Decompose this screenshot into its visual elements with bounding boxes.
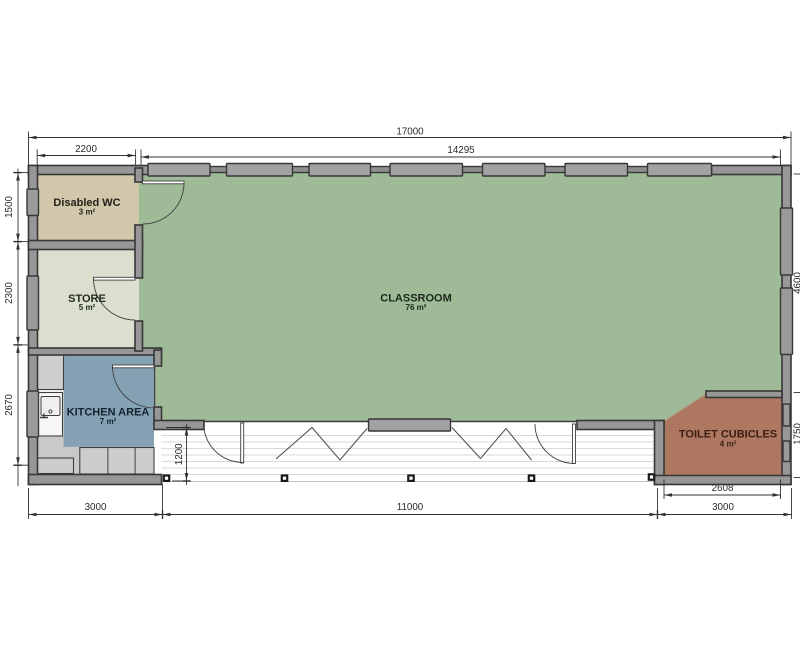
svg-text:2300: 2300	[4, 282, 15, 304]
svg-text:7 m²: 7 m²	[100, 417, 117, 426]
svg-text:2200: 2200	[75, 144, 97, 155]
svg-text:2608: 2608	[712, 483, 734, 494]
svg-text:14295: 14295	[447, 145, 475, 156]
svg-text:1200: 1200	[174, 443, 185, 465]
svg-text:2670: 2670	[4, 394, 15, 416]
svg-text:3000: 3000	[712, 502, 734, 513]
svg-text:5 m²: 5 m²	[79, 303, 96, 312]
svg-text:1750: 1750	[793, 423, 800, 445]
svg-text:4 m²: 4 m²	[720, 440, 737, 449]
svg-text:1500: 1500	[4, 196, 15, 218]
svg-text:76 m²: 76 m²	[406, 303, 427, 312]
svg-text:17000: 17000	[396, 127, 424, 138]
svg-text:3000: 3000	[85, 502, 107, 513]
svg-text:11000: 11000	[397, 502, 424, 513]
svg-text:4600: 4600	[793, 272, 800, 294]
svg-text:3 m²: 3 m²	[79, 208, 96, 217]
